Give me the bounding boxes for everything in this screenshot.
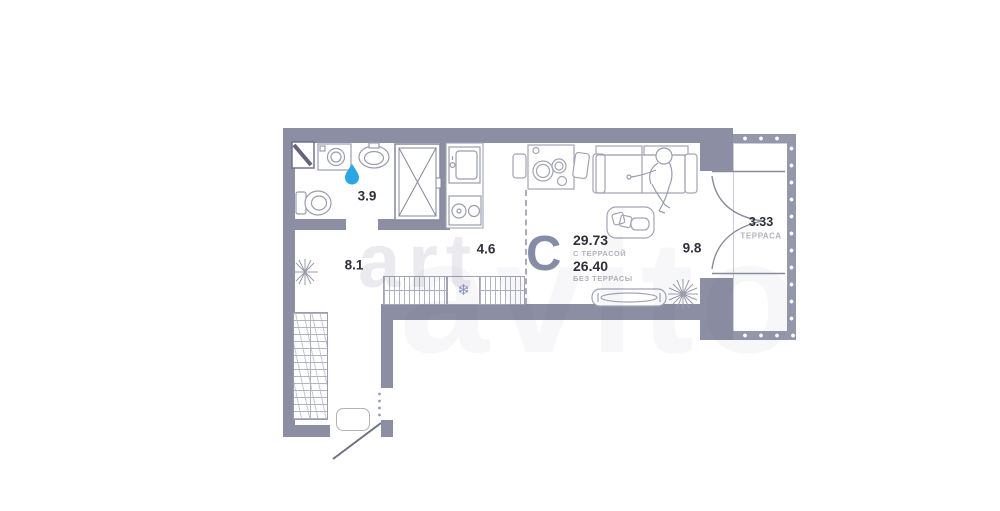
washing-machine-icon: [318, 144, 351, 170]
sofa: [593, 146, 697, 193]
without-terrace-caption: БЕЗ ТЕРРАСЫ: [573, 275, 633, 283]
shower-icon: [395, 144, 441, 220]
plant-hall-icon: [292, 259, 318, 285]
bathroom-sink-icon: [359, 143, 389, 168]
with-terrace-caption: С ТЕРРАСОЙ: [573, 250, 626, 258]
toilet-icon: [296, 191, 331, 215]
furniture-linework: [0, 0, 1000, 511]
person-figure: [627, 148, 672, 213]
floorplan-image: ❄: [0, 0, 1000, 511]
room-label-kitchen: 4.6: [477, 242, 496, 257]
room-label-living: 9.8: [683, 241, 702, 256]
room-label-terrace: 3.33: [749, 215, 773, 229]
vent-shaft-icon: [292, 142, 314, 168]
total-area-without-terrace: 26.40: [573, 259, 608, 273]
dining-table: [513, 145, 590, 189]
plant-living-icon: [668, 279, 698, 309]
kitchen-sink-icon: [449, 147, 480, 183]
room-label-bathroom: 3.9: [358, 189, 377, 204]
coffee-table: [607, 207, 654, 238]
apartment-type-letter: С: [526, 230, 561, 279]
total-area-with-terrace: 29.73: [573, 233, 608, 247]
terrace-caption: ТЕРРАСА: [740, 232, 781, 241]
room-label-hallway: 8.1: [345, 258, 364, 273]
stove-icon: [449, 196, 481, 225]
tv-bench: [592, 289, 666, 306]
entrance-door: [333, 393, 381, 459]
